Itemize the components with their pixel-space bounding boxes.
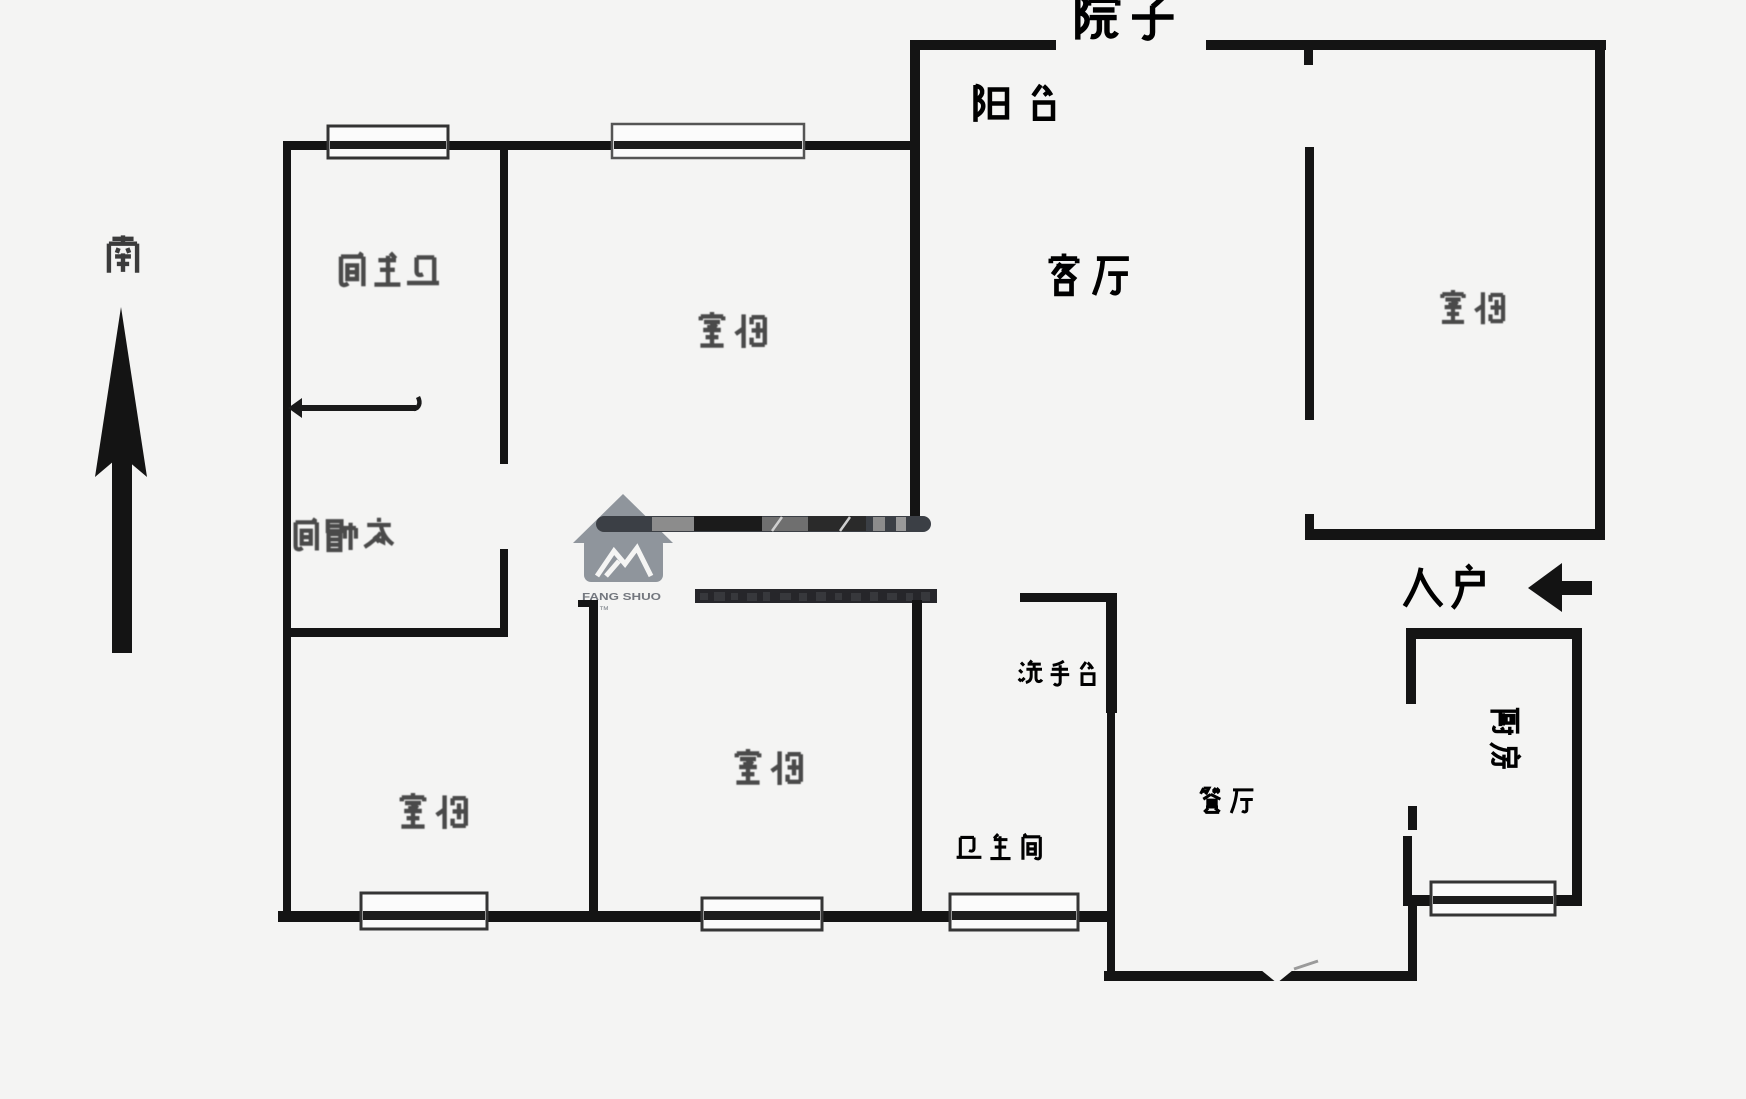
svg-text:FANG SHUO: FANG SHUO — [582, 591, 661, 603]
svg-text:™: ™ — [599, 605, 609, 616]
